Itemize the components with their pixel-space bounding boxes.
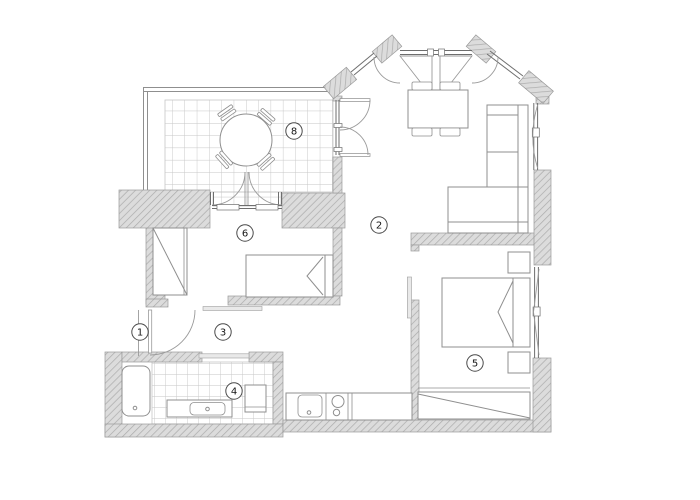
- wall-segment: [534, 170, 551, 265]
- wall-segment: [282, 193, 345, 228]
- wall-segment: [283, 420, 551, 432]
- wall-segment: [411, 245, 419, 251]
- wall-segment: [249, 352, 283, 362]
- wall-segment: [333, 228, 342, 296]
- bathroom-sink: [190, 403, 225, 416]
- label-living-number: 2: [376, 221, 382, 232]
- label-entry: 1: [132, 324, 148, 340]
- label-small-bedroom-number: 6: [242, 229, 248, 240]
- bedroom-bed: [442, 278, 530, 347]
- wall-segment: [533, 358, 551, 432]
- bedroom-sliding-door: [407, 277, 411, 318]
- terrace-door-sill-mark: [256, 205, 278, 211]
- sofa-chaise: [448, 187, 528, 233]
- bay-door-stile: [428, 49, 434, 56]
- bay-pier: [466, 35, 496, 63]
- label-hall-number: 3: [220, 328, 226, 339]
- wall-segment: [105, 424, 283, 437]
- terrace-living-door-swing: [340, 127, 368, 155]
- bay-window-left: [351, 53, 374, 72]
- bay-window-left: [354, 56, 377, 75]
- bedroom-nightstand: [508, 352, 530, 373]
- bay-casement-arc: [374, 57, 400, 83]
- floor-plan-drawing: 1 2 3 4 5 6 8: [0, 0, 700, 500]
- wall-segment: [119, 190, 210, 228]
- dining-chair: [440, 128, 460, 136]
- bay-pier: [372, 35, 402, 63]
- bathtub: [122, 366, 150, 416]
- terrace-living-door-mark: [334, 148, 342, 152]
- dining-chair: [440, 82, 460, 90]
- label-living: 2: [371, 217, 387, 233]
- label-terrace-number: 8: [291, 127, 297, 138]
- label-entry-number: 1: [137, 328, 143, 339]
- terrace-living-door-leaf: [340, 154, 370, 157]
- washing-machine: [245, 385, 266, 412]
- room6-sliding-door: [203, 307, 262, 311]
- terrace-living-door-swing: [340, 100, 370, 130]
- label-bedroom: 5: [467, 355, 483, 371]
- wall-segment: [333, 157, 342, 193]
- terrace: [143, 88, 333, 207]
- label-bathroom: 4: [226, 383, 242, 399]
- dining-chair: [412, 128, 432, 136]
- bathroom-sliding-door: [199, 354, 249, 358]
- entry-door-leaf: [149, 310, 152, 353]
- bay-window-right: [490, 51, 523, 76]
- label-terrace: 8: [286, 123, 302, 139]
- terrace-door-sill-mark: [217, 205, 239, 211]
- label-bathroom-number: 4: [231, 387, 237, 398]
- bedroom-nightstand: [508, 252, 530, 273]
- floor-plan: 1 2 3 4 5 6 8: [0, 0, 700, 500]
- label-hall: 3: [215, 324, 231, 340]
- label-bedroom-number: 5: [472, 359, 478, 370]
- wall-segment: [273, 362, 283, 424]
- terrace-living-door-leaf: [340, 99, 370, 102]
- wall-segment: [411, 233, 535, 245]
- terrace-door-recess-tiles: [213, 192, 281, 206]
- bay-door-stile: [439, 49, 445, 56]
- entry-door-swing: [150, 310, 195, 355]
- wall-segment: [146, 299, 168, 307]
- dining-table: [408, 90, 468, 128]
- bay-window-right: [487, 54, 520, 79]
- dining-chair: [412, 82, 432, 90]
- sofa: [487, 105, 528, 190]
- label-small-bedroom: 6: [237, 225, 253, 241]
